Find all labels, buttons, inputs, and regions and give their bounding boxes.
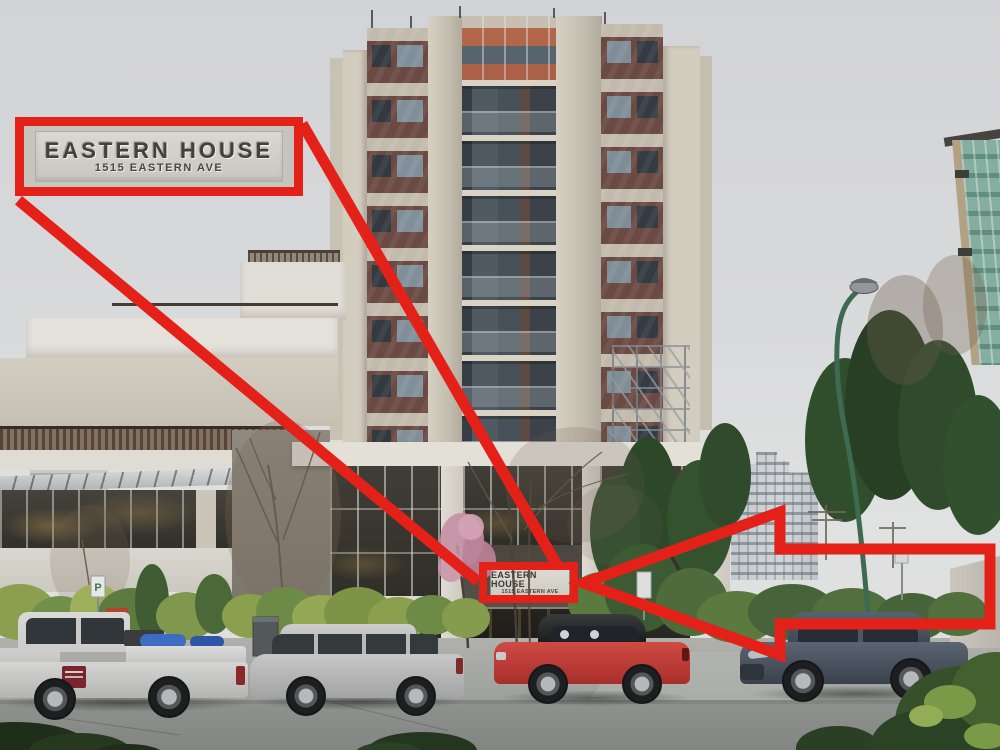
left-pointing-arrow <box>584 512 990 655</box>
arrow-annotation-layer <box>0 0 1000 750</box>
annotated-building-photo: EASTERN HOUSE 1515 EASTERN AVE <box>0 0 1000 750</box>
